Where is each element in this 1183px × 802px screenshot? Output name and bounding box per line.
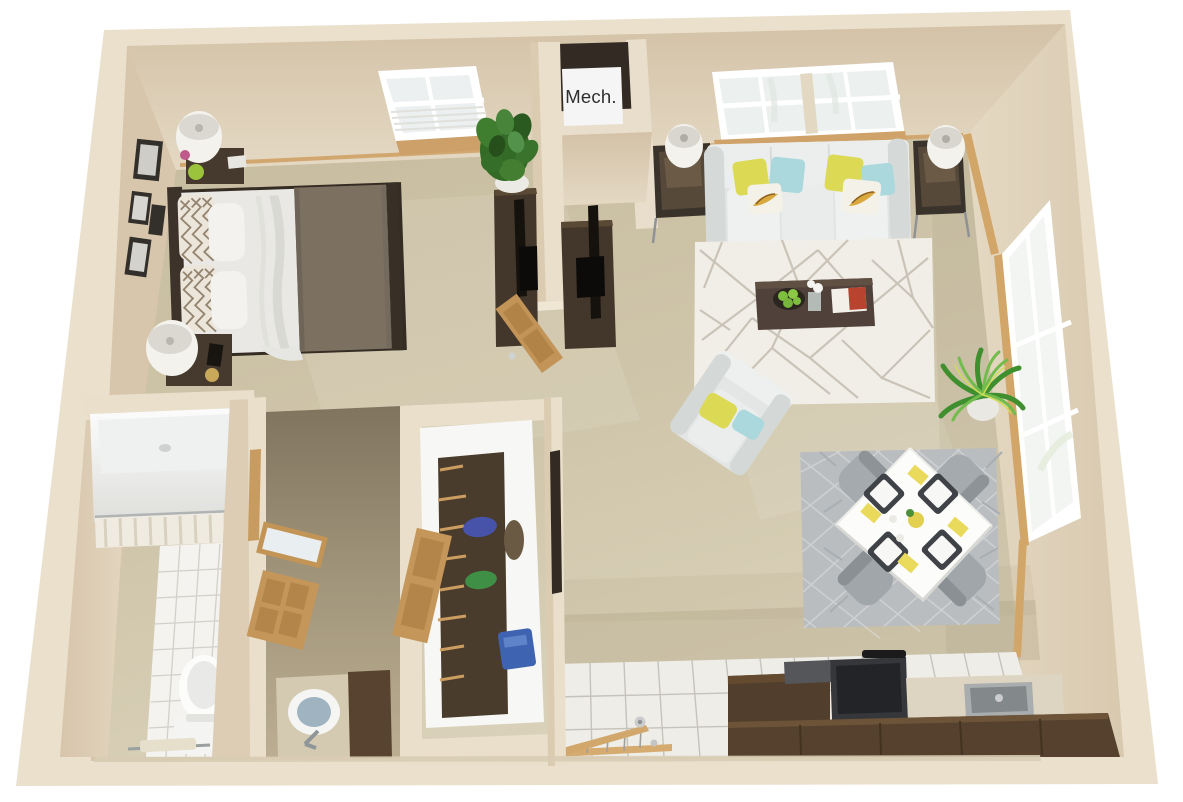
svg-text:Mech.: Mech. (565, 86, 616, 107)
